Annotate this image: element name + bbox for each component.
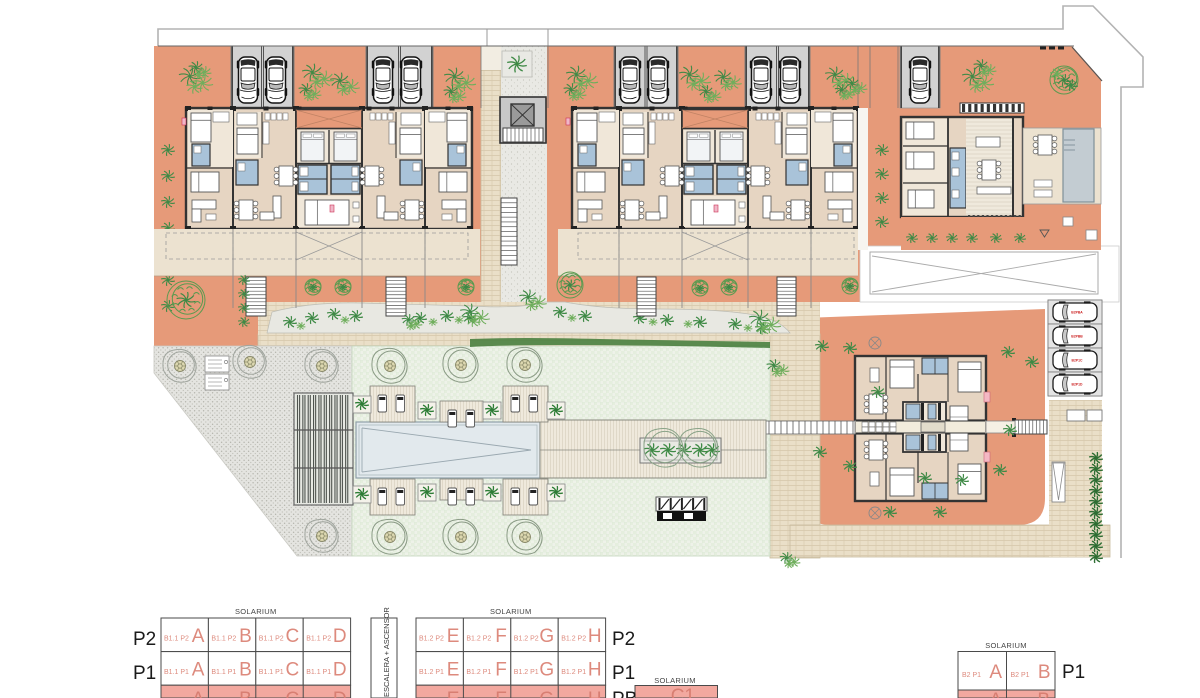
svg-text:B1.1 P2: B1.1 P2 [306, 635, 331, 642]
svg-text:B2PBB: B2PBB [1071, 335, 1083, 339]
svg-text:SOLARIUM: SOLARIUM [654, 676, 696, 685]
svg-text:H: H [588, 689, 602, 698]
svg-text:B: B [239, 626, 252, 647]
svg-text:SOLARIUM: SOLARIUM [985, 641, 1027, 650]
svg-text:B2P1C: B2P1C [1072, 359, 1083, 363]
svg-text:H: H [588, 626, 602, 647]
svg-text:P2: P2 [133, 629, 156, 650]
svg-text:SOLARIUM: SOLARIUM [235, 607, 277, 616]
svg-text:F: F [495, 659, 507, 680]
svg-text:D: D [333, 689, 347, 698]
svg-text:B: B [239, 689, 252, 698]
svg-text:P2: P2 [612, 629, 635, 650]
svg-text:G: G [539, 659, 554, 680]
svg-text:C1: C1 [671, 686, 695, 698]
svg-text:P1: P1 [133, 663, 156, 684]
svg-text:A: A [192, 626, 205, 647]
svg-text:B2 P1: B2 P1 [962, 672, 981, 679]
svg-text:B1.2 P2: B1.2 P2 [419, 635, 444, 642]
svg-text:E: E [447, 689, 460, 698]
svg-text:A: A [192, 689, 205, 698]
svg-text:B1.1 P1: B1.1 P1 [259, 669, 284, 676]
svg-text:B1.2 P2: B1.2 P2 [514, 635, 539, 642]
svg-text:ESCALERA + ASCENSOR: ESCALERA + ASCENSOR [382, 607, 391, 697]
svg-text:F: F [495, 626, 507, 647]
svg-text:PB: PB [612, 689, 637, 698]
svg-text:C: C [285, 689, 299, 698]
svg-text:A: A [989, 690, 1002, 698]
svg-text:B2P1D: B2P1D [1072, 383, 1083, 387]
svg-text:B1.1 P1: B1.1 P1 [164, 669, 189, 676]
svg-text:H: H [588, 659, 602, 680]
svg-text:B2PBA: B2PBA [1071, 311, 1083, 315]
svg-text:D: D [333, 659, 347, 680]
svg-text:B1.1 P1: B1.1 P1 [306, 669, 331, 676]
svg-text:B1.2 P2: B1.2 P2 [466, 635, 491, 642]
svg-text:E: E [447, 626, 460, 647]
svg-text:B1.2 P1: B1.2 P1 [419, 669, 444, 676]
svg-text:B1.2 P1: B1.2 P1 [466, 669, 491, 676]
svg-text:P1: P1 [1062, 662, 1085, 683]
svg-text:B1.2 P2: B1.2 P2 [561, 635, 586, 642]
svg-text:B1.2 P1: B1.2 P1 [514, 669, 539, 676]
svg-text:B1.1 P2: B1.1 P2 [211, 635, 236, 642]
svg-text:B: B [1038, 662, 1051, 683]
svg-text:A: A [989, 662, 1002, 683]
svg-text:B1.1 P1: B1.1 P1 [211, 669, 236, 676]
svg-text:SOLARIUM: SOLARIUM [490, 607, 532, 616]
svg-text:G: G [539, 689, 554, 698]
svg-text:B: B [239, 659, 252, 680]
svg-text:B1.1 P2: B1.1 P2 [259, 635, 284, 642]
svg-text:C: C [285, 626, 299, 647]
svg-text:D: D [333, 626, 347, 647]
svg-text:B1.2 P1: B1.2 P1 [561, 669, 586, 676]
svg-text:E: E [447, 659, 460, 680]
svg-text:P1: P1 [612, 663, 635, 684]
svg-text:B2 P1: B2 P1 [1011, 672, 1030, 679]
svg-text:G: G [539, 626, 554, 647]
svg-text:C: C [285, 659, 299, 680]
svg-text:B: B [1037, 690, 1050, 698]
svg-text:F: F [495, 689, 507, 698]
svg-text:A: A [192, 659, 205, 680]
svg-text:B1.1 P2: B1.1 P2 [164, 635, 189, 642]
